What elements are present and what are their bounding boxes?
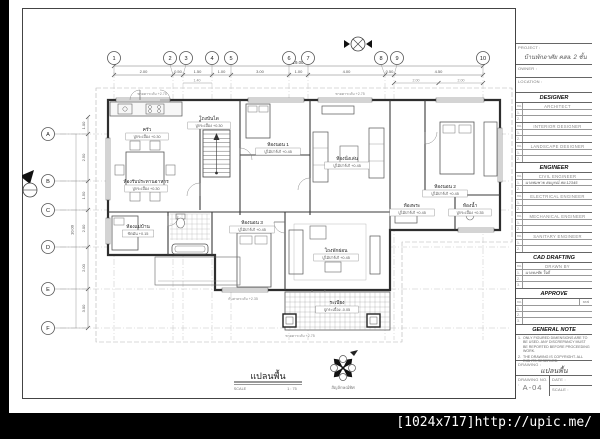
group-no-cell: no.	[516, 299, 523, 305]
compass: สัญลักษณ์ทิศ	[331, 350, 359, 390]
row-value	[523, 246, 592, 252]
scale-row: SCALE :	[550, 386, 592, 396]
row-number: 1.	[516, 110, 523, 115]
svg-text:9: 9	[395, 56, 398, 62]
svg-text:ปูไม้ปาร์เก้ +0.45: ปูไม้ปาร์เก้ +0.45	[322, 255, 350, 260]
group-no-cell: no.	[516, 193, 523, 199]
svg-text:2.00: 2.00	[140, 69, 149, 74]
group-title: CIVIL ENGINEER	[523, 173, 592, 179]
row-number: 1.	[516, 150, 523, 155]
svg-text:0.50: 0.50	[386, 69, 395, 74]
svg-text:C: C	[46, 208, 50, 214]
svg-text:ขัดมัน +0.15: ขัดมัน +0.15	[128, 232, 149, 236]
section-header: APPROVE	[516, 289, 592, 299]
row-number: 1.	[516, 220, 523, 225]
svg-text:ห้องนอน 1: ห้องนอน 1	[267, 141, 289, 148]
svg-text:2.00: 2.00	[81, 224, 86, 233]
svg-text:0.50: 0.50	[174, 69, 183, 74]
svg-text:4.00: 4.00	[343, 69, 352, 74]
row-value	[523, 276, 592, 281]
row-value	[523, 110, 592, 115]
project-name: บ้านพักอาศัย คสล. 2 ชั้น	[524, 52, 587, 62]
group-title: DRAWN BY	[523, 263, 592, 269]
svg-text:ปูไม้ปาร์เก้ +0.45: ปูไม้ปาร์เก้ +0.45	[431, 191, 459, 196]
svg-text:1.50: 1.50	[81, 191, 86, 200]
svg-text:1.40: 1.40	[194, 79, 201, 83]
svg-text:3: 3	[184, 56, 187, 62]
svg-text:4: 4	[210, 56, 213, 62]
group-row: 2.	[516, 246, 592, 252]
svg-text:โถงพักผ่อน: โถงพักผ่อน	[325, 247, 349, 254]
group-title: MECHANICAL ENGINEER	[523, 213, 592, 219]
svg-text:ชายคาระดับ +2.75: ชายคาระดับ +2.75	[285, 334, 315, 338]
group-no-cell: no.	[516, 173, 523, 179]
row-value: นายธงชัย ใจดี	[523, 270, 592, 275]
svg-text:1.00: 1.00	[218, 69, 227, 74]
row-number: 3.	[516, 318, 523, 324]
row-value	[523, 156, 592, 162]
row-number: 1.	[516, 270, 523, 275]
group-title: LANDSCAPE DESIGNER	[523, 143, 592, 149]
group-row: 2.	[516, 116, 592, 122]
title-block-group: no.seal1.2.3.	[516, 299, 592, 325]
title-block-group: no.SANITARY ENGINEER1.2.	[516, 233, 592, 253]
floor-plan-area: 19.002.000.501.501.003.001.004.000.504.5…	[22, 8, 515, 399]
svg-text:6: 6	[287, 56, 290, 62]
row-value	[523, 130, 592, 135]
row-value	[523, 318, 592, 324]
row-number: 1.	[516, 200, 523, 205]
row-number: 2.	[516, 246, 523, 252]
row-value	[523, 200, 592, 205]
row-number: 2.	[516, 206, 523, 212]
title-block-group: no.LANDSCAPE DESIGNER1.2.	[516, 143, 592, 163]
row-number: 2.	[516, 276, 523, 281]
row-value	[523, 206, 592, 212]
title-block-sections: DESIGNERno.ARCHITECT1.2.no.INTERIOR DESI…	[516, 93, 592, 325]
svg-text:ห้องแม่บ้าน: ห้องแม่บ้าน	[126, 223, 150, 230]
group-title: ELECTRICAL ENGINEER	[523, 193, 592, 199]
svg-text:10: 10	[480, 56, 486, 62]
title-block-group: no.ELECTRICAL ENGINEER1.2.	[516, 193, 592, 213]
row-number: 2.	[516, 116, 523, 122]
svg-text:B: B	[46, 179, 50, 185]
row-number: 3.	[516, 282, 523, 288]
svg-text:ปูไม้ปาร์เก้ +0.45: ปูไม้ปาร์เก้ +0.45	[333, 163, 361, 168]
svg-text:ครัว: ครัว	[143, 127, 152, 133]
left-border-strip	[0, 0, 9, 413]
group-header-row: no.seal	[516, 299, 592, 306]
group-row: 3.	[516, 318, 592, 324]
title-block-group: no.ARCHITECT1.2.	[516, 103, 592, 123]
svg-text:1 : 75: 1 : 75	[287, 387, 297, 391]
svg-text:E: E	[46, 287, 50, 293]
date-row: DATE :	[550, 376, 592, 386]
group-row: 2.	[516, 206, 592, 212]
svg-text:ปูไม้ปาร์เก้ +0.45: ปูไม้ปาร์เก้ +0.45	[398, 210, 426, 215]
drawing-name-row: DRAWING : แปลนพื้น	[516, 361, 592, 376]
svg-text:8: 8	[379, 56, 382, 62]
svg-text:5: 5	[229, 56, 232, 62]
group-no-cell: no.	[516, 123, 523, 129]
row-number: 1.	[516, 240, 523, 245]
general-note-header: GENERAL NOTE	[516, 325, 592, 335]
location-label: LOCATION :	[518, 79, 542, 84]
svg-text:10.00: 10.00	[70, 224, 75, 235]
svg-text:ห้องรับประทานอาหาร: ห้องรับประทานอาหาร	[123, 178, 169, 185]
group-header-row: no.ARCHITECT	[516, 103, 592, 110]
group-title: ARCHITECT	[523, 103, 592, 109]
svg-text:1.00: 1.00	[295, 69, 304, 74]
svg-text:F: F	[46, 326, 50, 332]
svg-text:ปูไม้ปาร์เก้ +0.45: ปูไม้ปาร์เก้ +0.45	[238, 227, 266, 232]
svg-text:SCALE: SCALE	[234, 387, 247, 391]
svg-text:2.00: 2.00	[81, 263, 86, 272]
svg-text:3.00: 3.00	[256, 69, 265, 74]
group-header-row: no.LANDSCAPE DESIGNER	[516, 143, 592, 150]
svg-text:ระเบียง: ระเบียง	[330, 299, 345, 306]
group-header-row: no.SANITARY ENGINEER	[516, 233, 592, 240]
project-label: PROJECT :	[518, 45, 541, 50]
location-row: LOCATION :	[516, 78, 592, 93]
svg-text:1.50: 1.50	[194, 69, 203, 74]
group-header-row: no.DRAWN BY	[516, 263, 592, 270]
title-block-revision-box	[516, 8, 592, 44]
general-note-item: 1.ONLY FIGURED DIMENSIONS ARE TO BE USED…	[518, 336, 590, 354]
group-header-row: no.INTERIOR DESIGNER	[516, 123, 592, 130]
drawing-no-cell: DRAWING NO. : A-04	[516, 376, 550, 396]
watermark-text: [1024x717]http://upic.me/	[396, 415, 592, 430]
row-number: 2.	[516, 136, 523, 142]
title-block: PROJECT : บ้านพักอาศัย คสล. 2 ชั้น OWNER…	[515, 8, 592, 399]
owner-row: OWNER :	[516, 65, 592, 78]
section-header: DESIGNER	[516, 93, 592, 103]
svg-text:A: A	[46, 132, 50, 138]
group-seal-cell: seal	[579, 299, 592, 305]
svg-text:ชายคาระดับ +2.75: ชายคาระดับ +2.75	[335, 92, 365, 96]
svg-text:1: 1	[112, 56, 115, 62]
title-block-group: no.CIVIL ENGINEER1.นายสมชาย สมบูรณ์ สย.1…	[516, 173, 592, 193]
plan-title: แปลนพื้นSCALE1 : 75	[234, 369, 302, 391]
title-block-group: no.INTERIOR DESIGNER1.2.	[516, 123, 592, 143]
section-header: CAD DRAFTING	[516, 253, 592, 263]
row-value	[523, 116, 592, 122]
drawing-sheet: 19.002.000.501.501.003.001.004.000.504.5…	[9, 0, 600, 413]
row-value	[523, 136, 592, 142]
row-number: 2.	[516, 226, 523, 232]
owner-label: OWNER :	[518, 66, 537, 71]
row-number: 2.	[516, 186, 523, 192]
page: { "watermark": { "text": "[1024x717]http…	[0, 0, 600, 439]
group-header-row: no.CIVIL ENGINEER	[516, 173, 592, 180]
row-number: 1.	[516, 180, 523, 185]
group-row: 2.	[516, 226, 592, 232]
svg-text:ห้องนั่งเล่น: ห้องนั่งเล่น	[336, 155, 359, 162]
title-block-group: no.MECHANICAL ENGINEER1.2.	[516, 213, 592, 233]
svg-text:ห้องนอน 2: ห้องนอน 2	[434, 183, 456, 190]
general-note-list: 1.ONLY FIGURED DIMENSIONS ARE TO BE USED…	[516, 335, 592, 361]
row-number: 2.	[516, 312, 523, 317]
group-title	[523, 299, 579, 305]
row-number: 1.	[516, 130, 523, 135]
title-block-group: no.DRAWN BY1.นายธงชัย ใจดี2.3.	[516, 263, 592, 289]
svg-text:2.50: 2.50	[81, 153, 86, 162]
svg-text:2.00: 2.00	[458, 79, 465, 83]
row-value	[523, 150, 592, 155]
svg-text:สัญลักษณ์ทิศ: สัญลักษณ์ทิศ	[331, 385, 355, 390]
group-title: SANITARY ENGINEER	[523, 233, 592, 239]
svg-text:7: 7	[306, 56, 309, 62]
row-value	[523, 220, 592, 225]
watermark-bar: [1024x717]http://upic.me/	[0, 413, 600, 439]
group-header-row: no.MECHANICAL ENGINEER	[516, 213, 592, 220]
group-row: 2.	[516, 186, 592, 192]
group-row: 2.	[516, 156, 592, 162]
svg-text:D: D	[46, 245, 50, 251]
svg-text:โถงบันได: โถงบันได	[199, 115, 219, 122]
svg-text:3.00: 3.00	[81, 304, 86, 313]
group-row: 2.	[516, 136, 592, 142]
group-no-cell: no.	[516, 233, 523, 239]
svg-text:ชายคาระดับ +2.75: ชายคาระดับ +2.75	[137, 92, 167, 96]
row-value	[523, 282, 592, 288]
drawing-number-row: DRAWING NO. : A-04 DATE : SCALE :	[516, 376, 592, 396]
svg-text:แปลนพื้น: แปลนพื้น	[250, 369, 285, 381]
row-number: 1.	[516, 306, 523, 311]
svg-text:2: 2	[168, 56, 171, 62]
svg-text:ปูไม้ปาร์เก้ +0.45: ปูไม้ปาร์เก้ +0.45	[264, 149, 292, 154]
row-value	[523, 186, 592, 192]
row-value	[523, 306, 592, 311]
date-label: DATE :	[552, 377, 566, 382]
row-value	[523, 240, 592, 245]
group-header-row: no.ELECTRICAL ENGINEER	[516, 193, 592, 200]
project-row: PROJECT : บ้านพักอาศัย คสล. 2 ชั้น	[516, 44, 592, 65]
group-no-cell: no.	[516, 213, 523, 219]
section-header: ENGINEER	[516, 163, 592, 173]
svg-text:4.50: 4.50	[435, 69, 444, 74]
svg-text:ห้องนอน 3: ห้องนอน 3	[241, 219, 263, 226]
svg-text:กันสาดระดับ +2.35: กันสาดระดับ +2.35	[228, 297, 258, 301]
row-number: 2.	[516, 156, 523, 162]
svg-text:2.00: 2.00	[413, 79, 420, 83]
row-value: นายสมชาย สมบูรณ์ สย.12345	[523, 180, 592, 185]
drawing-no-value: A-04	[516, 383, 549, 392]
note-text: ONLY FIGURED DIMENSIONS ARE TO BE USED. …	[523, 336, 590, 354]
floor-plan-svg: 19.002.000.501.501.003.001.004.000.504.5…	[22, 8, 515, 399]
row-value	[523, 312, 592, 317]
svg-text:1.00: 1.00	[81, 121, 86, 130]
group-no-cell: no.	[516, 143, 523, 149]
group-no-cell: no.	[516, 263, 523, 269]
group-no-cell: no.	[516, 103, 523, 109]
svg-text:ห้องพระ: ห้องพระ	[404, 202, 421, 209]
date-scale-cell: DATE : SCALE :	[550, 376, 592, 396]
group-title: INTERIOR DESIGNER	[523, 123, 592, 129]
scale-label: SCALE :	[552, 387, 569, 392]
row-value	[523, 226, 592, 232]
group-row: 3.	[516, 282, 592, 288]
